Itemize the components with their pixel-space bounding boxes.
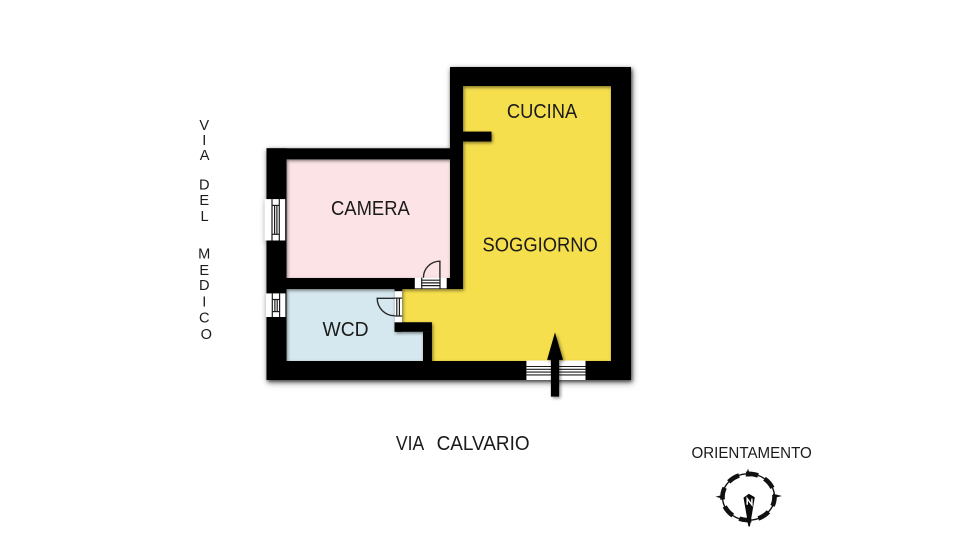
- svg-text:WCD: WCD: [323, 318, 369, 341]
- svg-text:CAMERA: CAMERA: [331, 197, 410, 220]
- svg-text:ORIENTAMENTO: ORIENTAMENTO: [692, 445, 812, 462]
- svg-text:SOGGIORNO: SOGGIORNO: [483, 234, 598, 257]
- svg-text:VIA: VIA: [396, 432, 425, 455]
- svg-text:CALVARIO: CALVARIO: [437, 432, 530, 455]
- svg-text:CUCINA: CUCINA: [507, 100, 578, 123]
